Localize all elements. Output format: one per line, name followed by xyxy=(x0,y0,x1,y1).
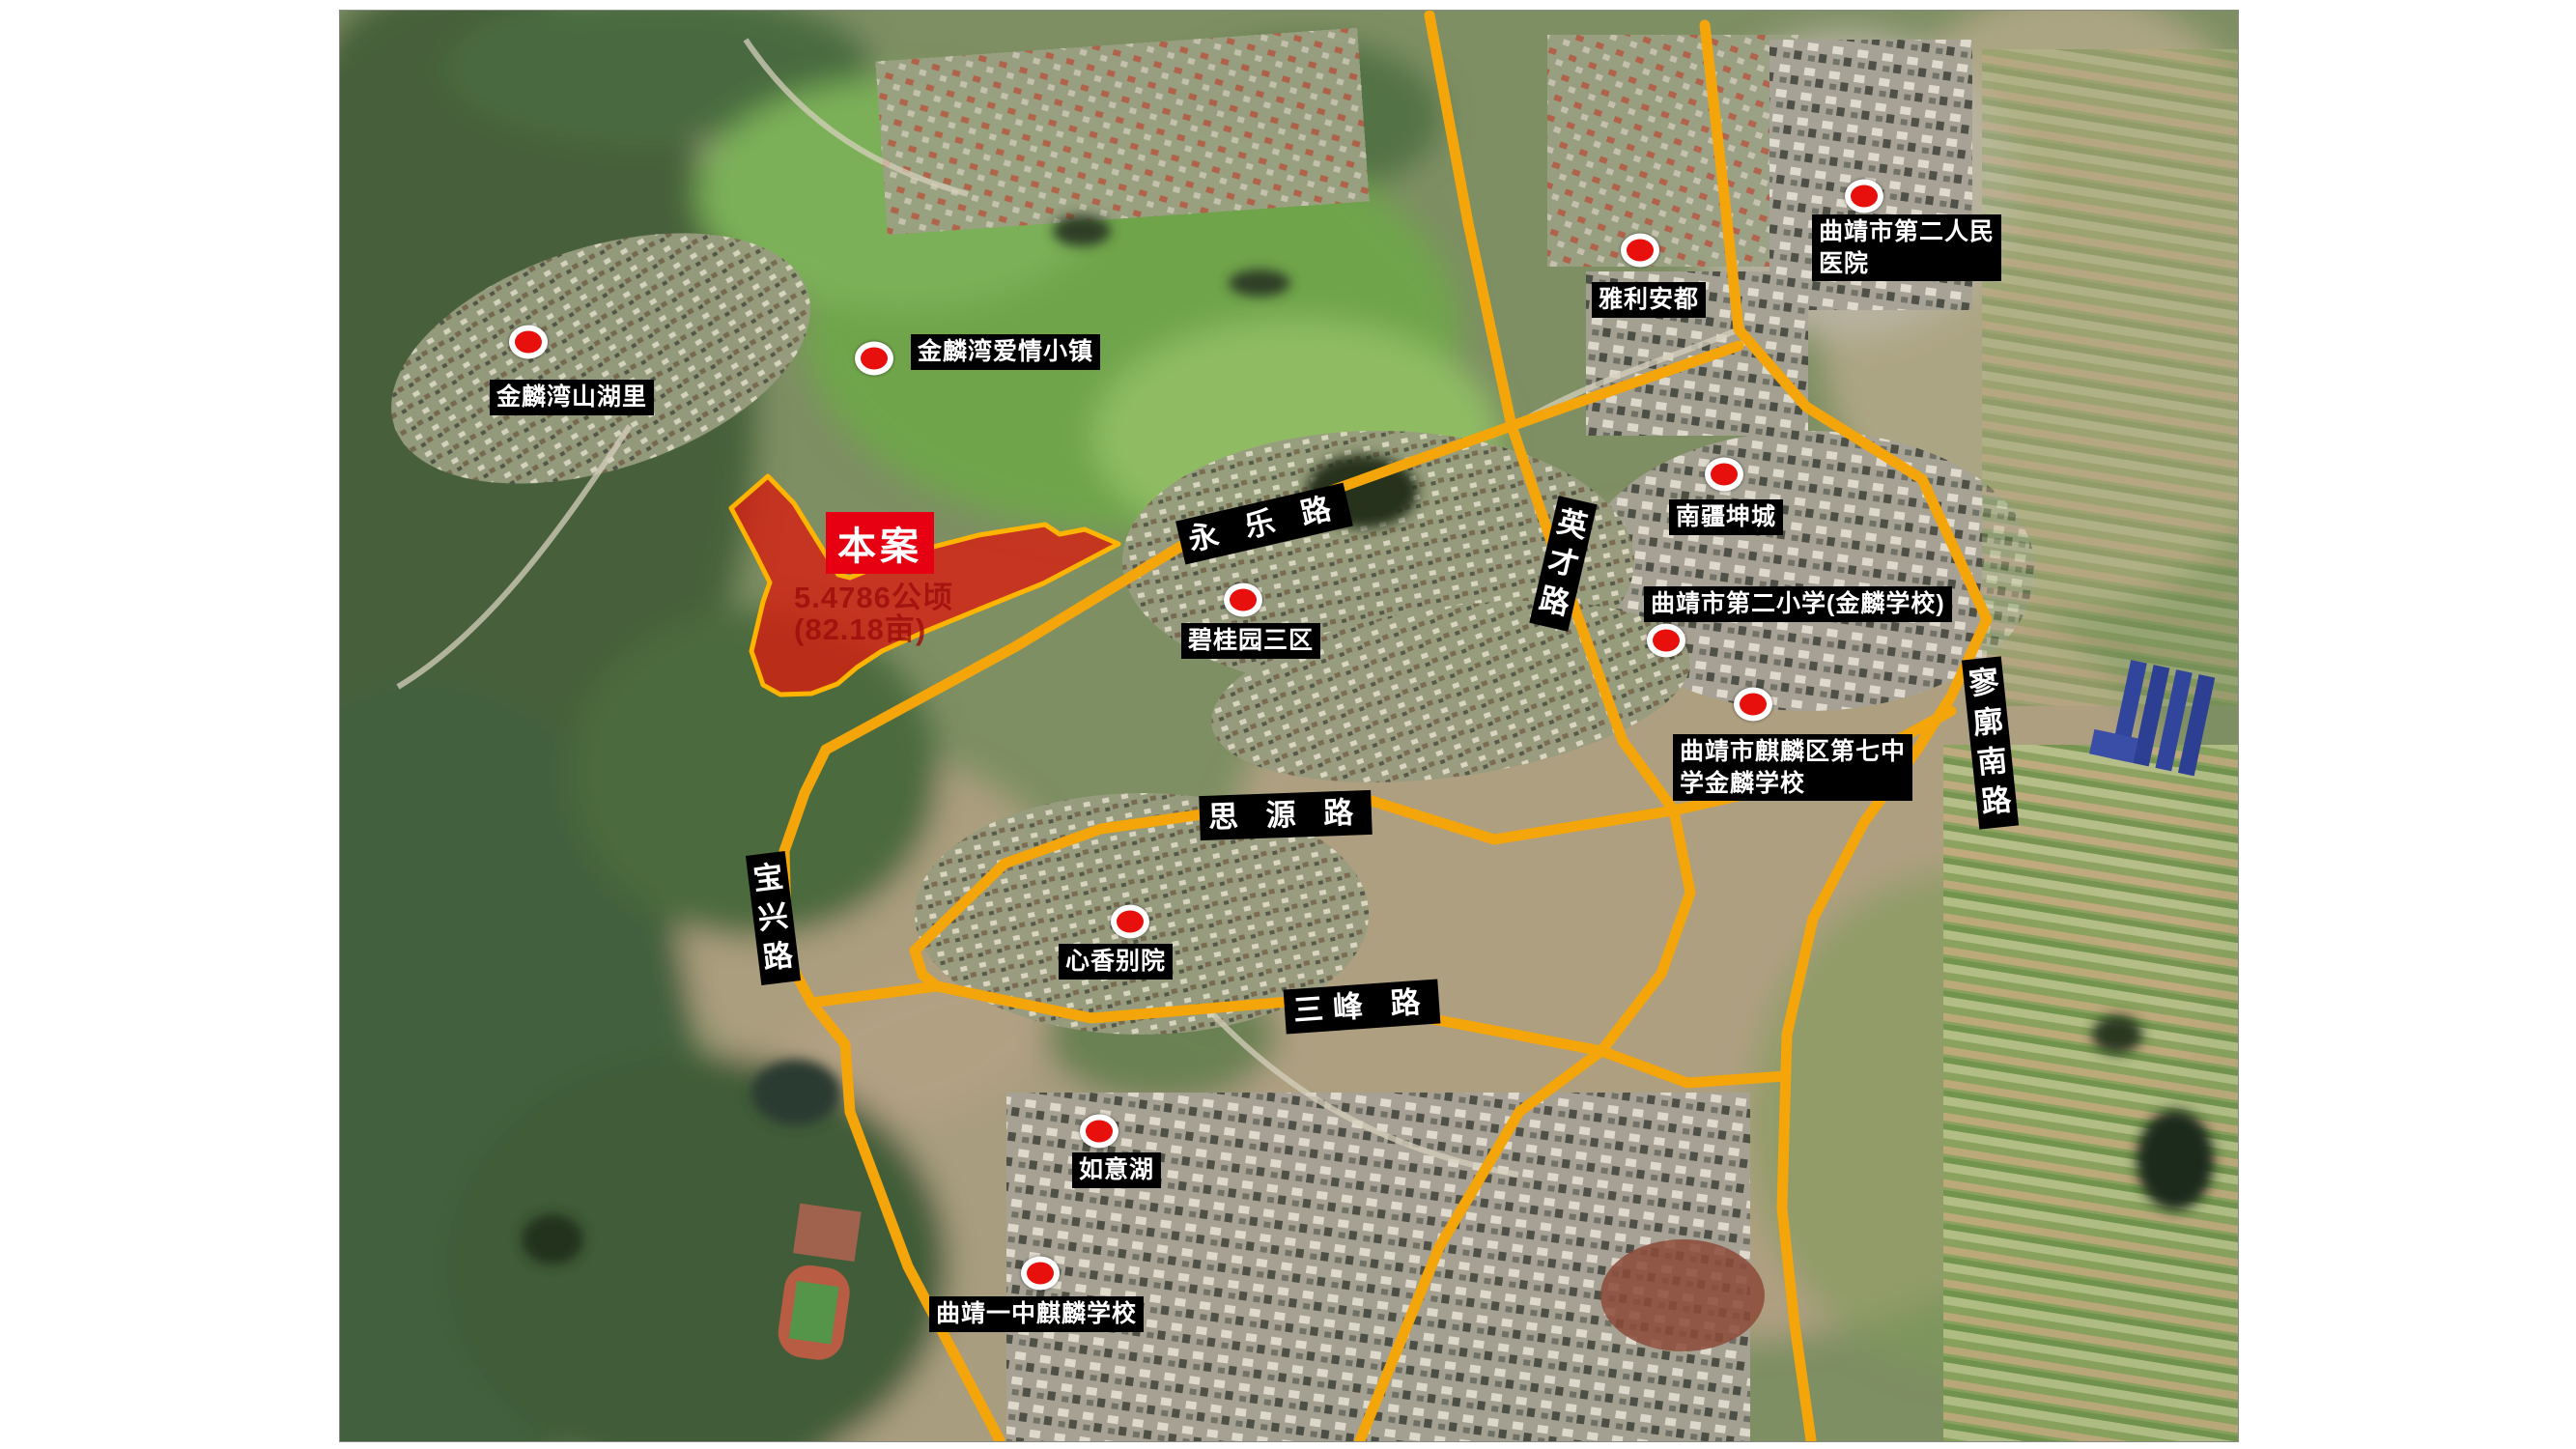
road-label-siyuan: 思 源 路 xyxy=(1199,790,1373,840)
site-area-line1: 5.4786公顷 xyxy=(794,582,953,614)
poi-label-diqi-zhongxue: 曲靖市麒麟区第七中 学金麟学校 xyxy=(1673,734,1912,801)
poi-dot-nanjiang-kuncheng xyxy=(1705,458,1743,492)
poi-dot-dier-xiaoxue xyxy=(1647,624,1685,658)
poi-label-jinlinwan-shanhuli: 金麟湾山湖里 xyxy=(490,380,654,415)
poi-label-xinxiang-bieyuan: 心香别院 xyxy=(1059,944,1173,980)
poi-label-jinlinwan-aiqing: 金麟湾爱情小镇 xyxy=(911,334,1100,370)
site-area-line2: (82.18亩) xyxy=(794,614,953,646)
poi-dot-jinlinwan-shanhuli xyxy=(509,326,548,359)
poi-dot-yizhong-qilin xyxy=(1021,1257,1060,1291)
poi-dot-diqi-zhongxue xyxy=(1734,688,1772,722)
poi-label-nanjiang-kuncheng: 南疆坤城 xyxy=(1669,499,1783,535)
poi-dot-yaliandu xyxy=(1621,234,1659,268)
poi-dot-biguiyuan-sanqu xyxy=(1224,583,1262,617)
poi-label-yizhong-qilin: 曲靖一中麒麟学校 xyxy=(929,1296,1144,1332)
poi-label-dier-renmin-yiyuan: 曲靖市第二人民 医院 xyxy=(1812,214,2001,281)
poi-label-dier-xiaoxue: 曲靖市第二小学(金麟学校) xyxy=(1644,586,1952,622)
poi-label-ruyihu: 如意湖 xyxy=(1072,1152,1161,1188)
satellite-map: 本案 5.4786公顷 (82.18亩) 金麟湾山湖里金麟湾爱情小镇雅利安都曲靖… xyxy=(339,10,2239,1442)
site-label: 本案 xyxy=(826,512,934,574)
site-area-text: 5.4786公顷 (82.18亩) xyxy=(794,582,953,645)
poi-dot-dier-renmin-yiyuan xyxy=(1845,180,1883,213)
poi-dot-jinlinwan-aiqing xyxy=(855,342,893,376)
poi-label-biguiyuan-sanqu: 碧桂园三区 xyxy=(1181,623,1320,659)
poi-dot-xinxiang-bieyuan xyxy=(1111,905,1149,939)
poi-label-yaliandu: 雅利安都 xyxy=(1592,282,1706,318)
page: 本案 5.4786公顷 (82.18亩) 金麟湾山湖里金麟湾爱情小镇雅利安都曲靖… xyxy=(0,0,2576,1449)
poi-dot-ruyihu xyxy=(1080,1115,1118,1149)
